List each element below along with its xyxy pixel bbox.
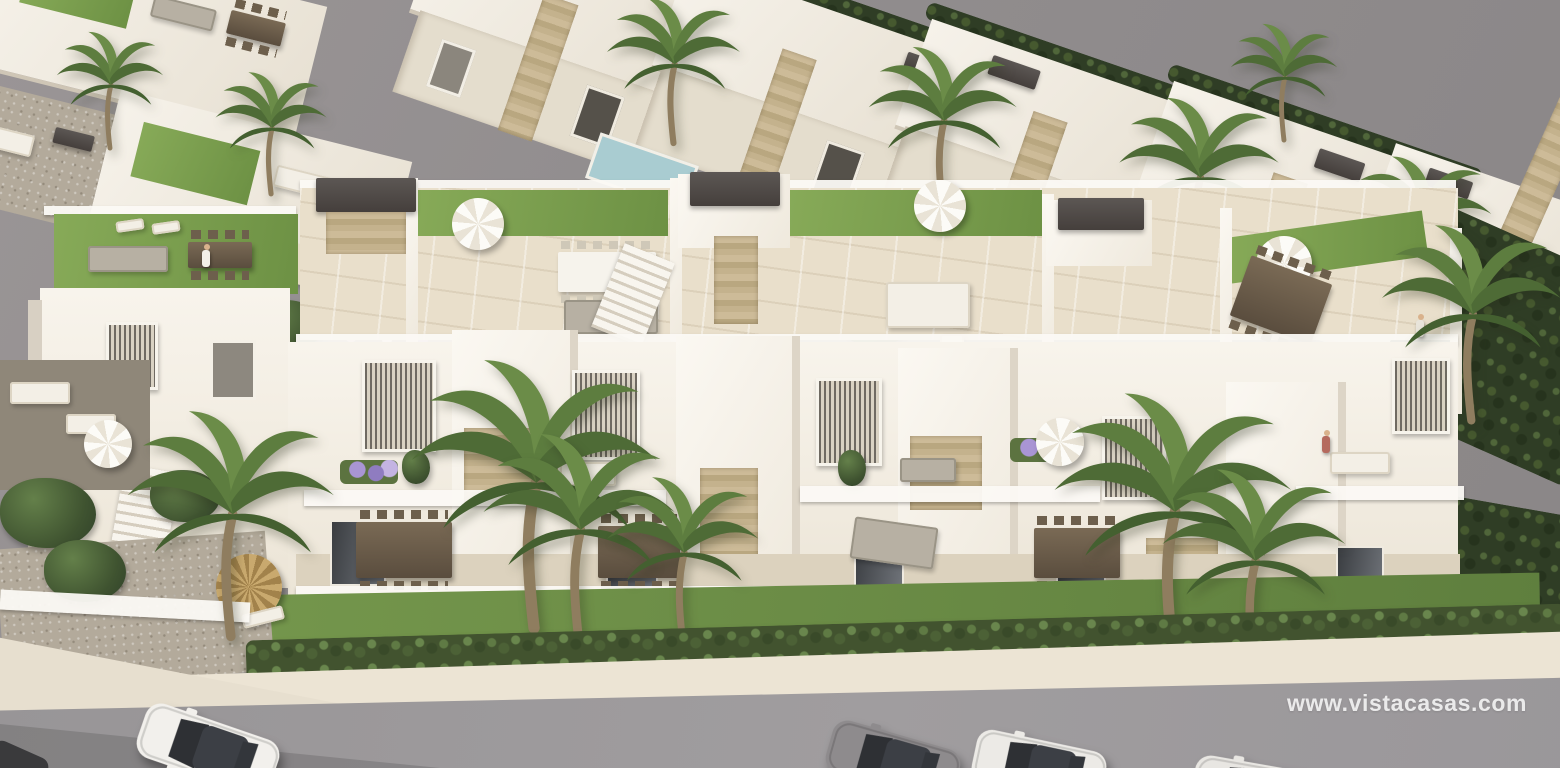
palm-tree xyxy=(112,396,342,644)
palm-tree xyxy=(596,0,746,148)
balcony-daybed xyxy=(900,458,956,482)
rooftop-dining-table xyxy=(188,242,252,268)
aerial-render-scene: www.vistacasas.com xyxy=(0,0,1560,768)
person-on-roof xyxy=(202,250,210,267)
watermark: www.vistacasas.com xyxy=(1287,690,1527,717)
roof-pergola xyxy=(690,172,780,206)
parasol-white xyxy=(452,198,504,250)
roof-pergola xyxy=(316,178,416,212)
person-on-balcony xyxy=(1322,436,1330,453)
parasol-white xyxy=(914,180,966,232)
balcony-flowers-purple xyxy=(340,460,398,484)
rooftop-sofa xyxy=(88,246,168,272)
balcony-plant xyxy=(838,450,866,486)
palm-tree xyxy=(1222,16,1342,144)
palm-tree xyxy=(48,24,168,152)
roof-pergola xyxy=(1058,198,1144,230)
garden-bush xyxy=(0,478,96,548)
rooftop-corner-sofa xyxy=(886,282,970,328)
palm-tree xyxy=(1368,212,1560,427)
palm-tree xyxy=(596,466,764,648)
